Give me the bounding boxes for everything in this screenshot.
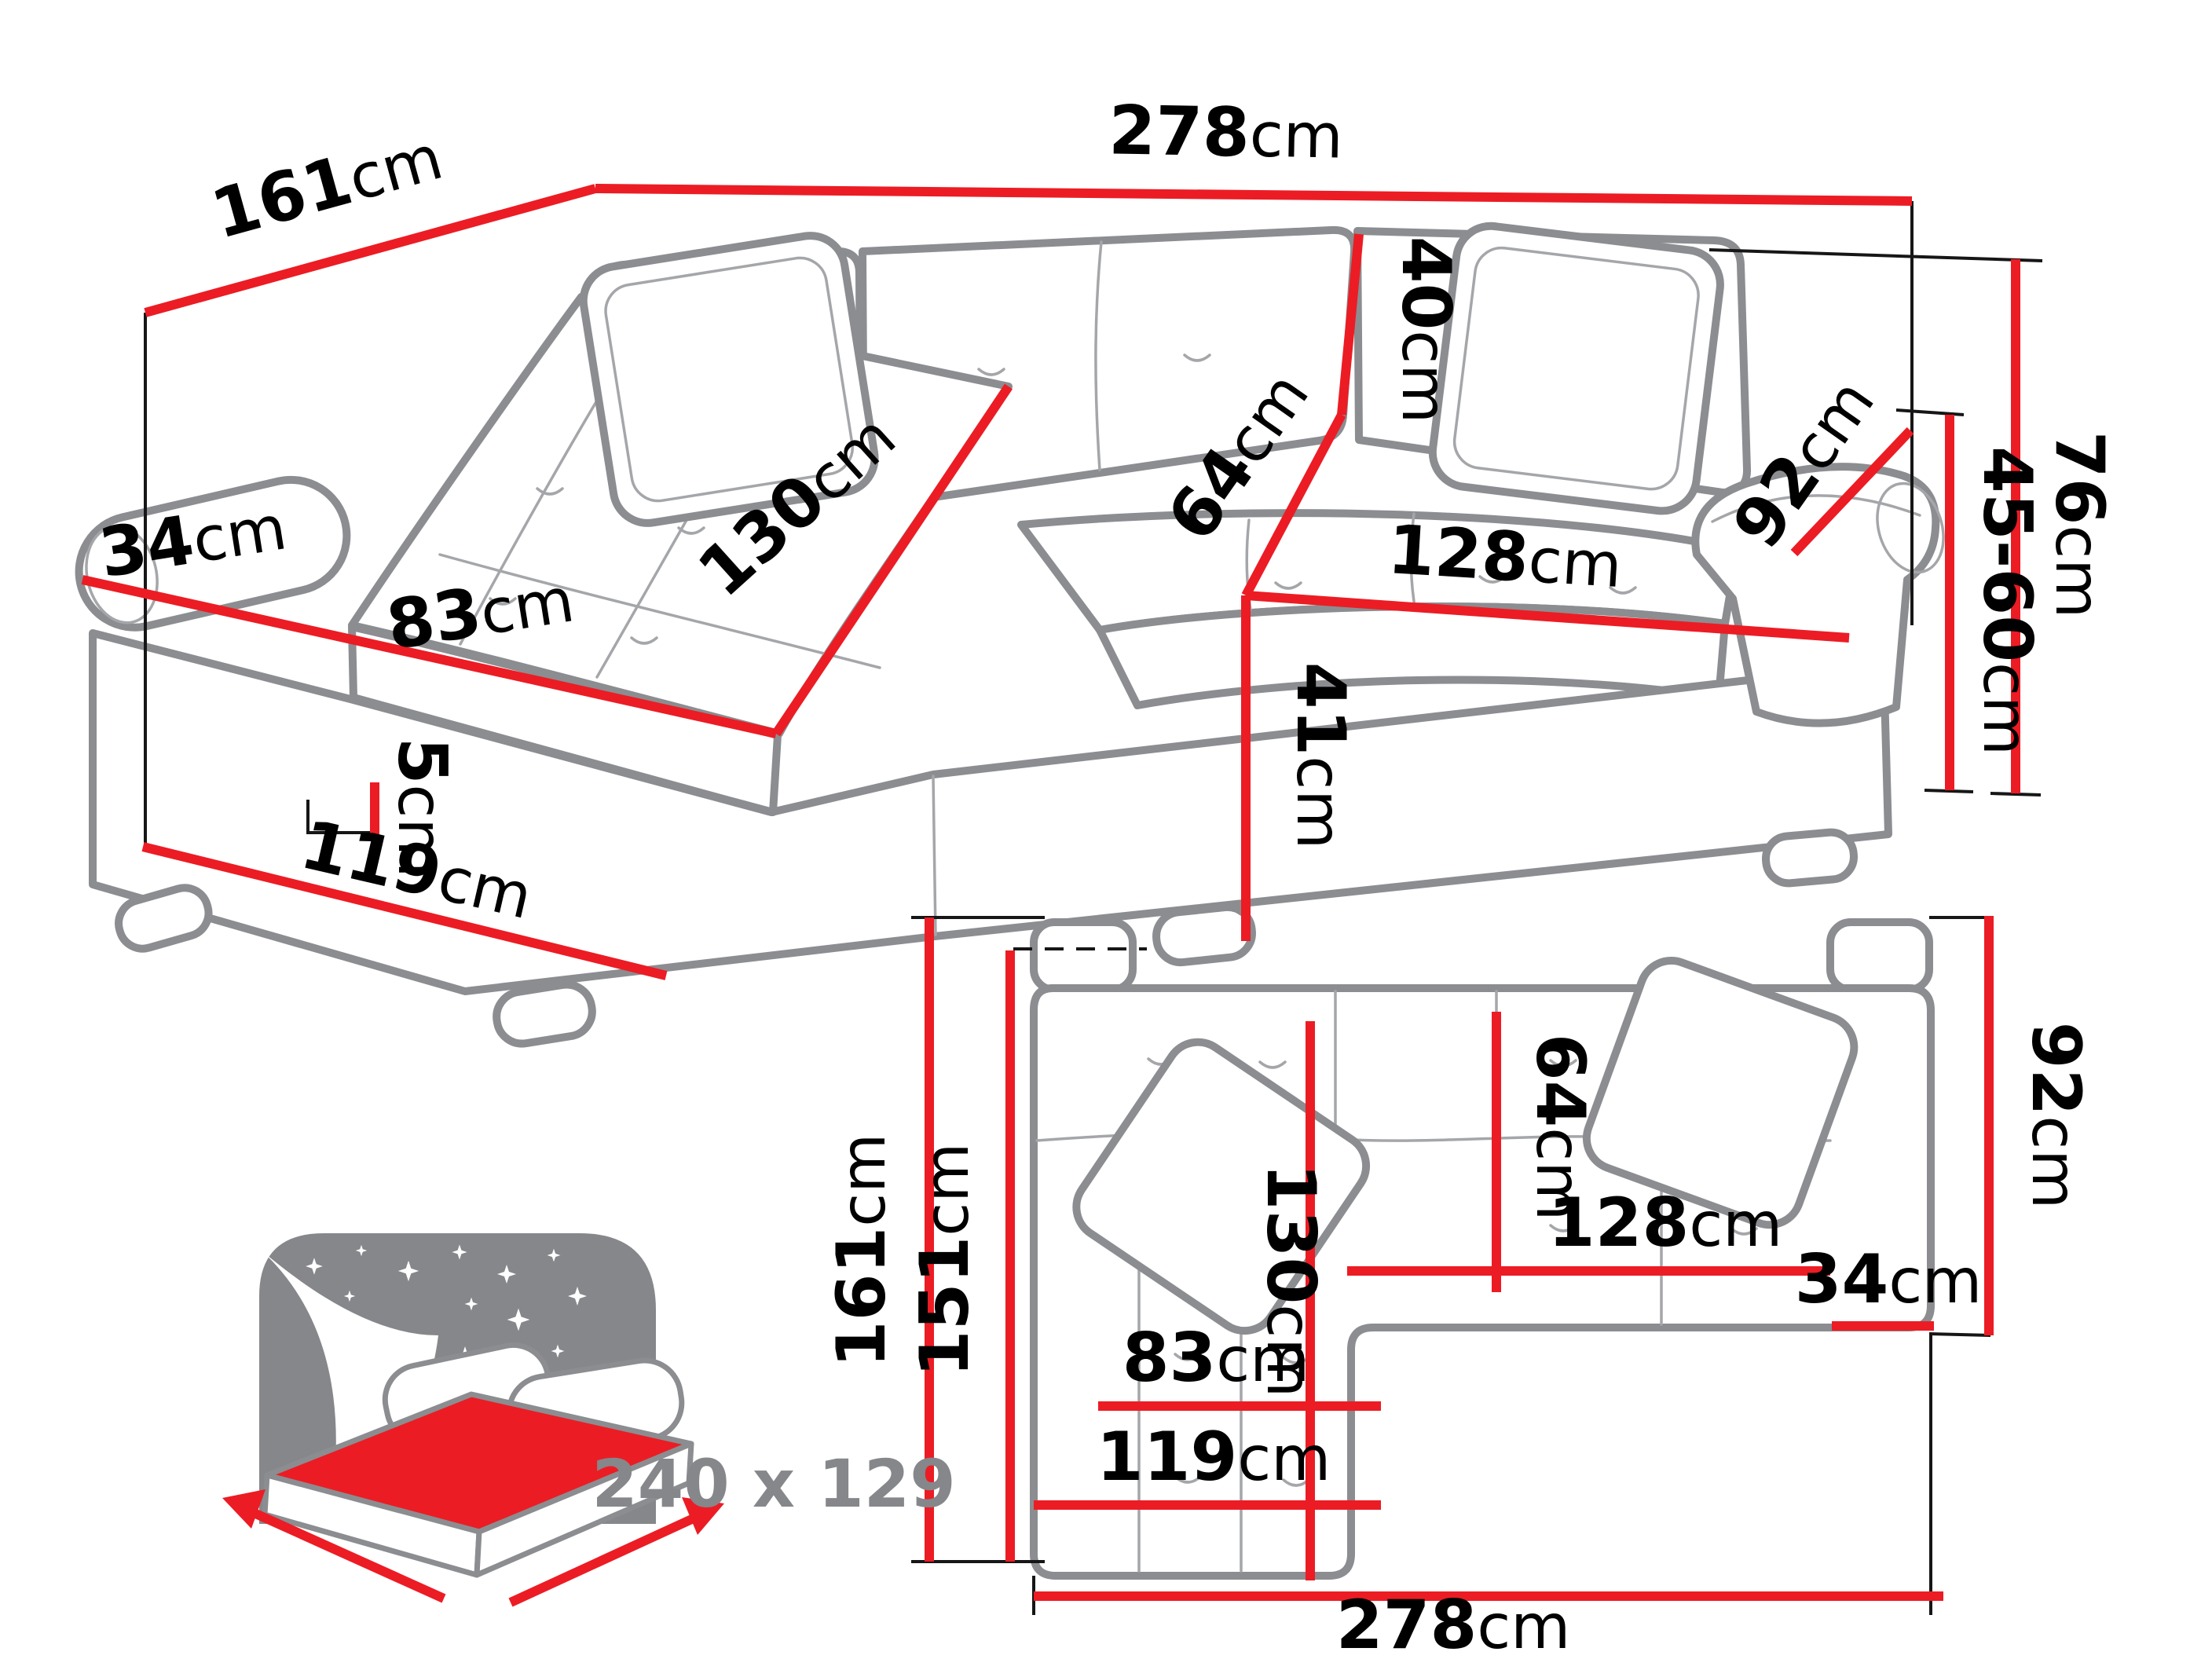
pillow-right <box>1429 222 1724 515</box>
label-plan-depth-inner: 151cm <box>906 1143 984 1377</box>
label-plan-chaise-seat: 83cm <box>1122 1319 1310 1397</box>
sleeping-size-label: 240 x 129 <box>591 1445 955 1522</box>
label-seat-front-height: 41cm <box>1281 662 1360 850</box>
label-seat-height-range: 45-60cm <box>1968 446 2046 756</box>
leg <box>1154 905 1254 965</box>
extension-line <box>1990 793 2041 795</box>
label-backrest-height: 40cm <box>1386 236 1465 424</box>
label-plan-seat-width: 128cm <box>1548 1184 1782 1262</box>
plan-armrest-right-block <box>1830 922 1929 990</box>
plan-armrest-left-block <box>1034 922 1133 990</box>
label-plan-total-width: 278cm <box>1336 1586 1570 1659</box>
diagram-page: 161cm 278cm 34cm 83cm 130cm 40cm 64cm 12… <box>0 0 2212 1659</box>
label-total-height: 76cm <box>2040 431 2119 619</box>
label-total-width: 278cm <box>1108 91 1343 174</box>
label-plan-armrest-width: 34cm <box>1795 1240 1983 1319</box>
extension-line <box>1929 1334 1990 1335</box>
leg <box>1764 830 1856 885</box>
label-plan-total-depth: 161cm <box>822 1133 901 1368</box>
label-plan-chaise-front: 119cm <box>1097 1418 1331 1496</box>
label-plan-armrest-length: 92cm <box>2016 1022 2095 1210</box>
extension-line <box>1925 790 1973 792</box>
